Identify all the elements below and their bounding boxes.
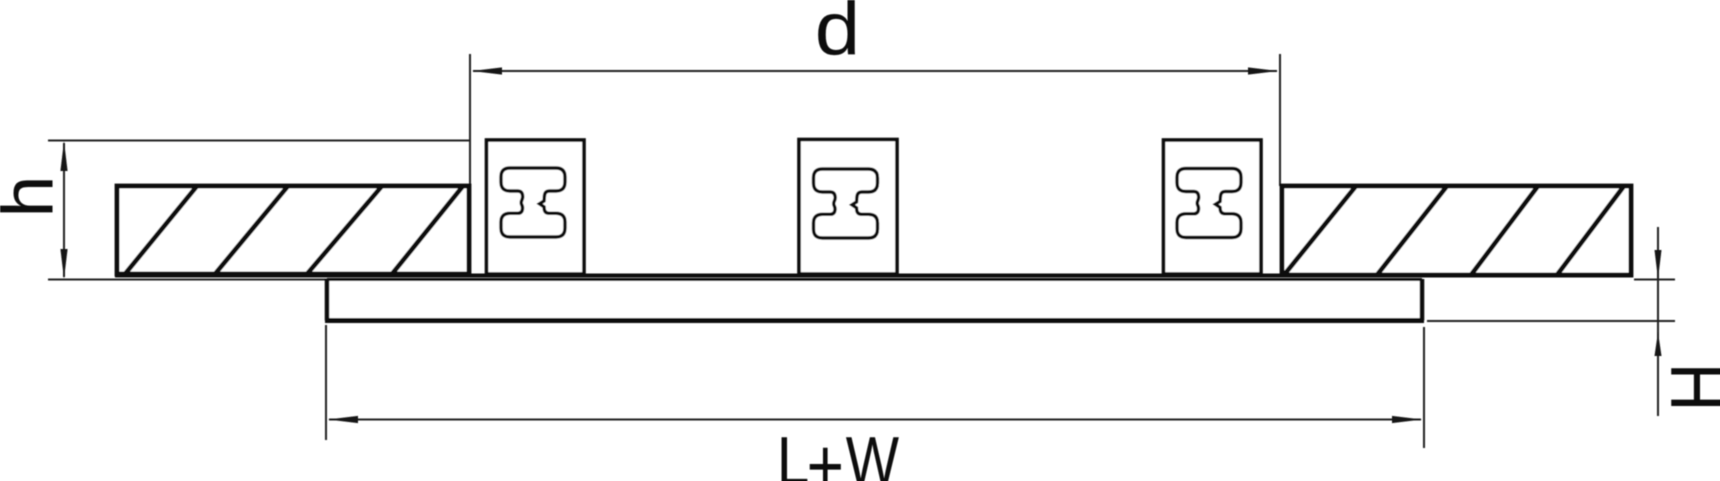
svg-text:L: L	[777, 424, 810, 481]
svg-text:+: +	[807, 423, 844, 481]
svg-text:W: W	[846, 423, 899, 481]
svg-text:d: d	[815, 0, 860, 71]
svg-text:H: H	[1656, 363, 1720, 412]
svg-text:h: h	[0, 175, 68, 217]
